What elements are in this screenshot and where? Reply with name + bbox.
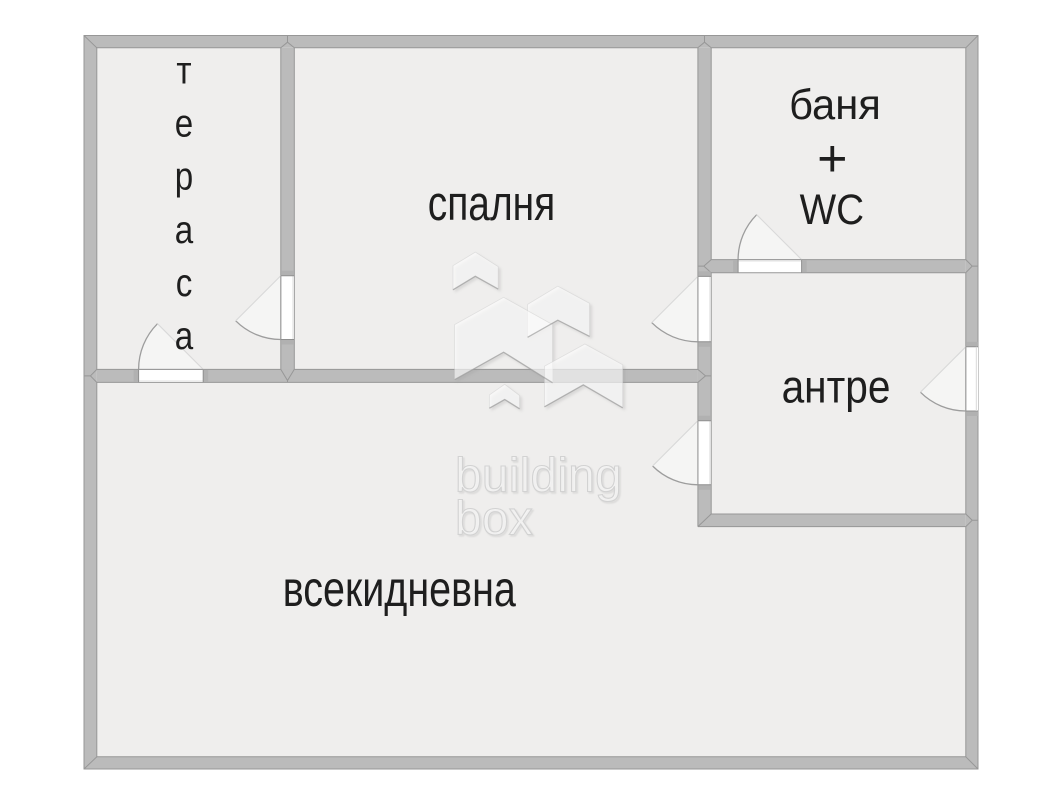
- svg-text:всекидневна: всекидневна: [283, 561, 517, 618]
- svg-text:баня: баня: [789, 81, 881, 129]
- svg-text:с: с: [176, 260, 193, 304]
- svg-text:а: а: [175, 207, 194, 251]
- svg-text:р: р: [175, 154, 193, 198]
- svg-text:box: box: [455, 493, 533, 546]
- svg-text:т: т: [176, 48, 191, 92]
- svg-text:спалня: спалня: [428, 177, 556, 231]
- svg-text:антре: антре: [782, 362, 891, 413]
- svg-text:WC: WC: [800, 185, 864, 233]
- svg-text:е: е: [175, 101, 193, 145]
- svg-text:а: а: [175, 313, 194, 357]
- svg-text:+: +: [817, 130, 847, 188]
